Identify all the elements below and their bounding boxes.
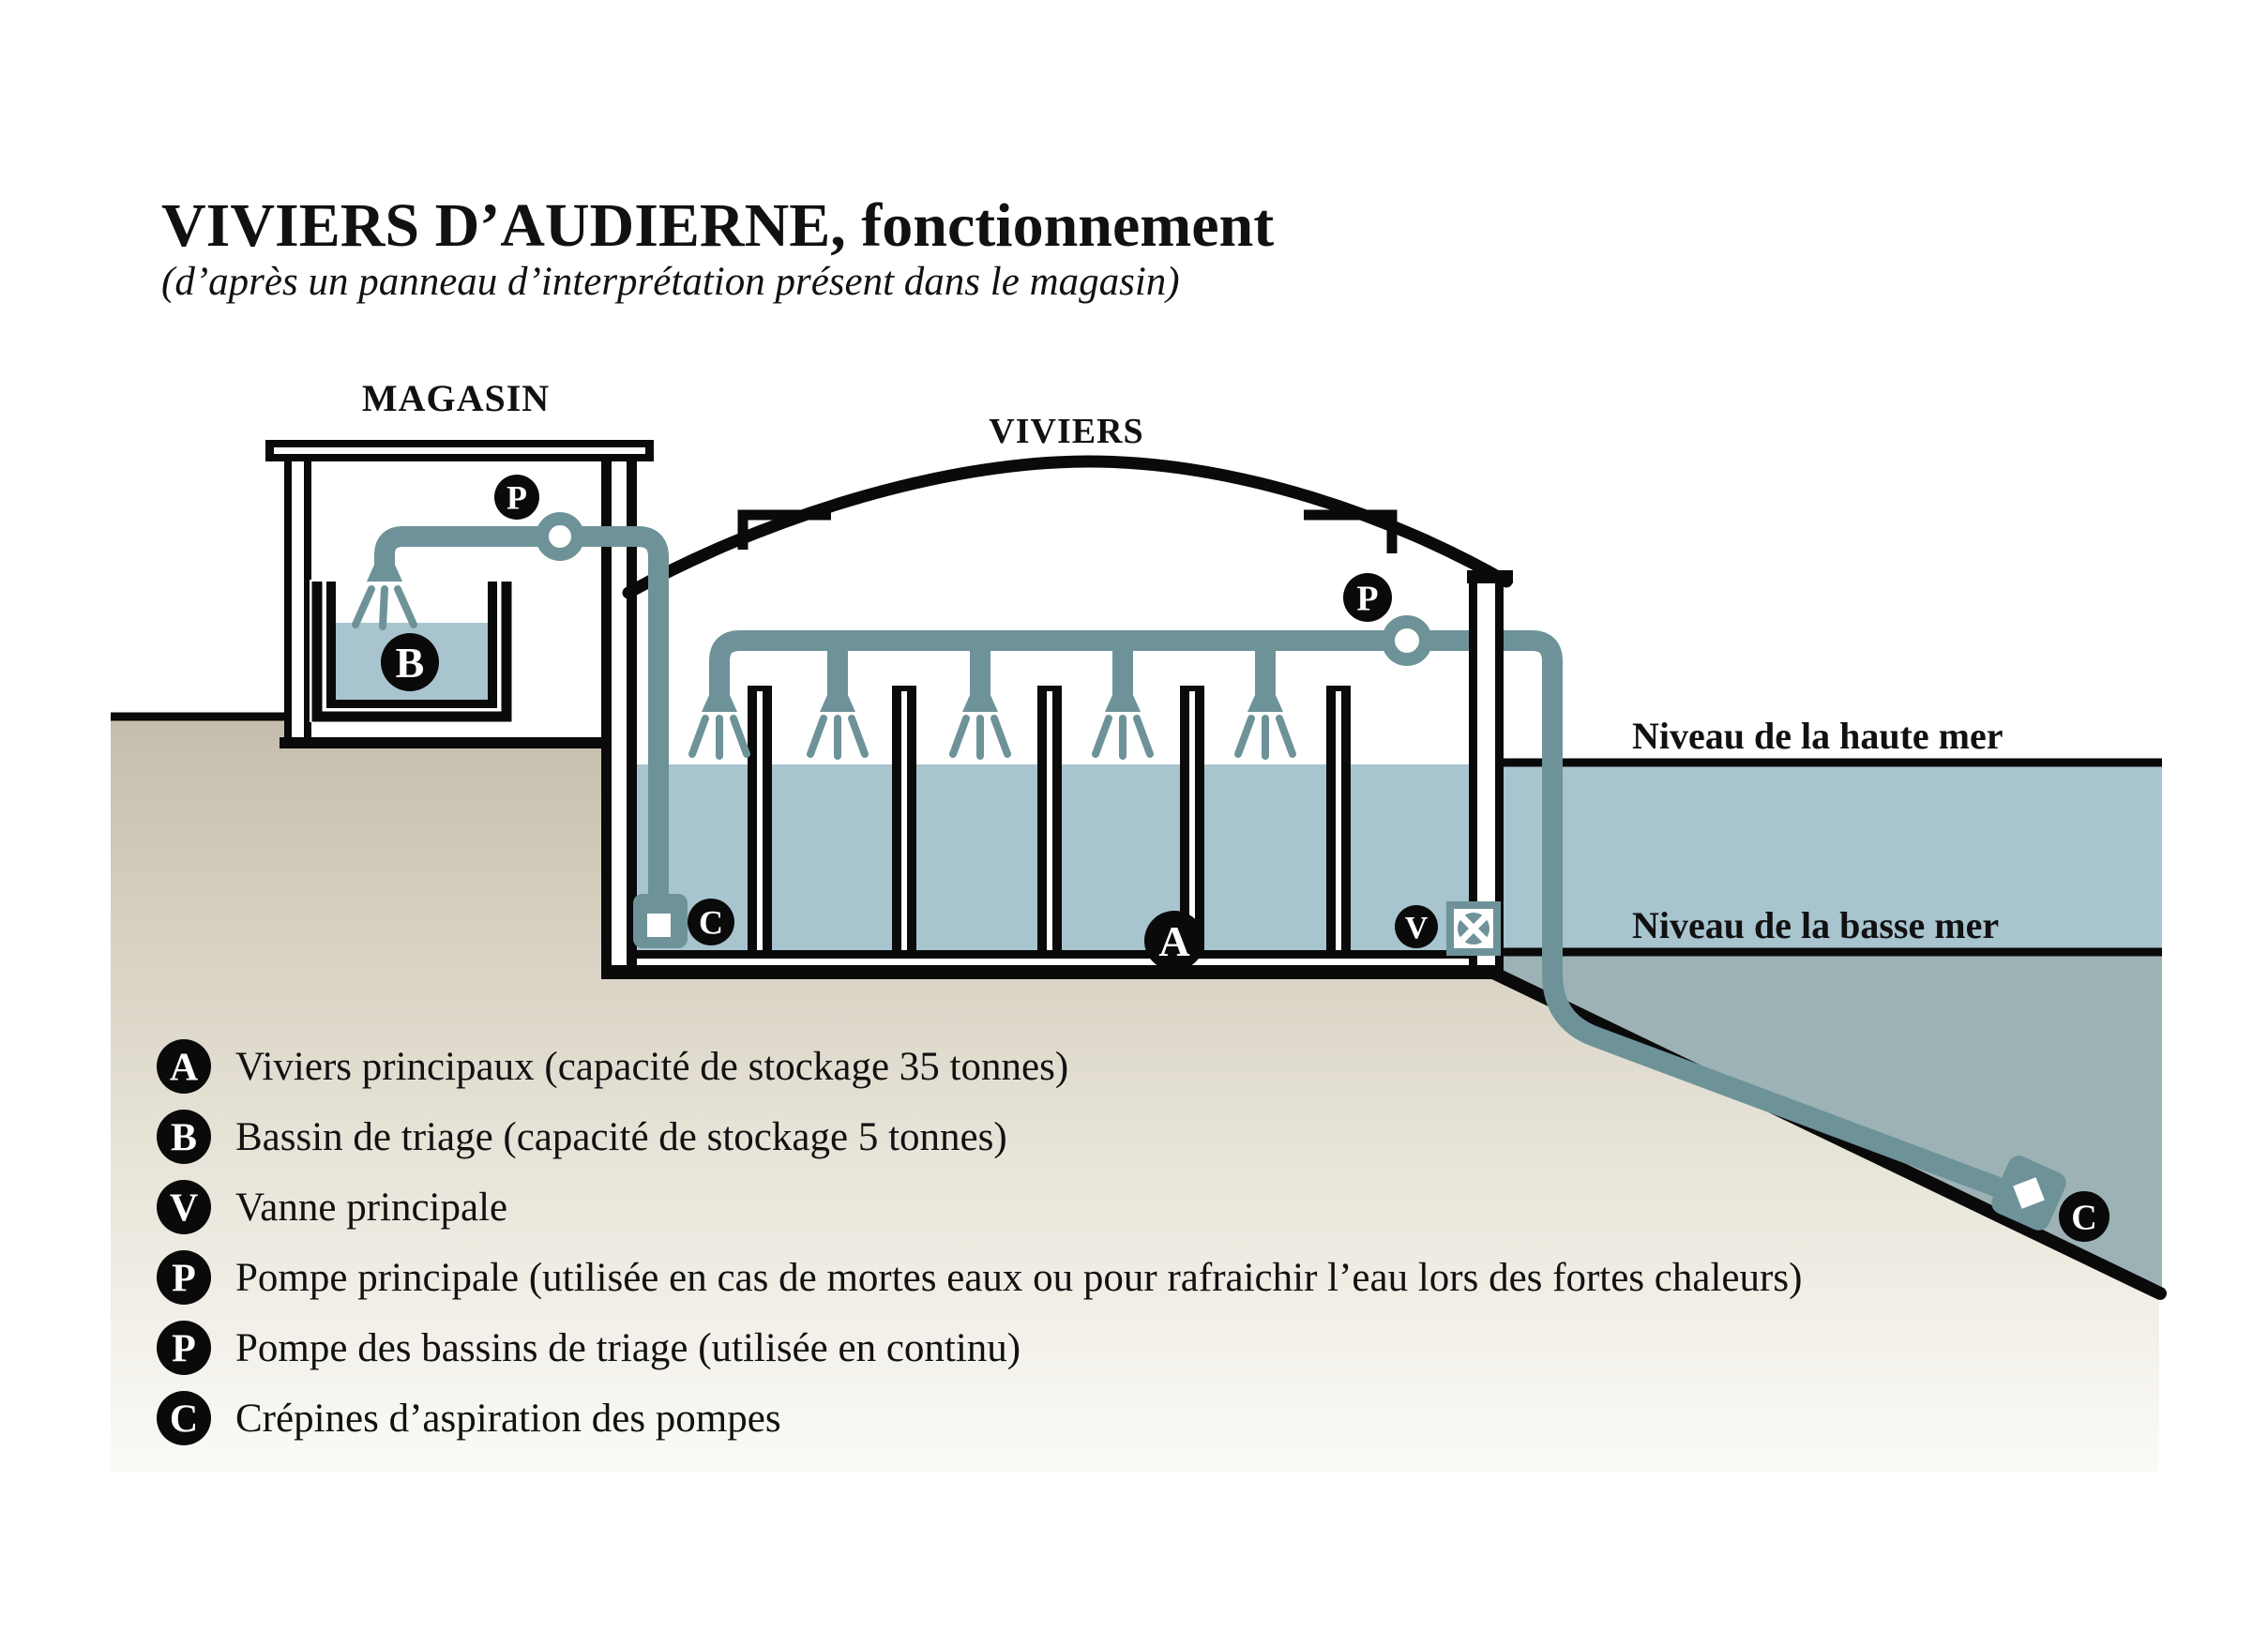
magasin-left-wall-gap — [292, 461, 304, 737]
badge-strainer-right: C — [2059, 1191, 2109, 1242]
viviers-label: VIVIERS — [989, 412, 1143, 451]
legend-item: B Bassin de triage (capacité de stockage… — [157, 1110, 1007, 1164]
tank-floor-gap — [616, 959, 1482, 965]
legend-item: A Viviers principaux (capacité de stocka… — [157, 1039, 1068, 1094]
legend-badge-letter: V — [170, 1187, 198, 1231]
badge-basin: B — [381, 633, 439, 691]
triage-pump-icon — [536, 512, 584, 561]
viviers-arch-roof — [628, 461, 1506, 593]
badge-letter: P — [1356, 579, 1378, 618]
legend-item: C Crépines d’aspiration des pompes — [157, 1391, 781, 1445]
legend-item-text: Pompe principale (utilisée en cas de mor… — [235, 1256, 1802, 1300]
badge-letter: P — [507, 479, 527, 517]
legend-item-text: Viviers principaux (capacité de stockage… — [235, 1045, 1068, 1089]
legend-item-text: Pompe des bassins de triage (utilisée en… — [235, 1326, 1021, 1370]
legend-item-text: Vanne principale — [235, 1186, 507, 1230]
magasin-roof-slit — [274, 447, 645, 454]
badge-letter: C — [2071, 1198, 2096, 1237]
main-pump-icon — [1382, 615, 1432, 666]
badge-main-tanks: A — [1144, 911, 1204, 971]
badge-letter: C — [699, 904, 723, 942]
legend-badge-letter: C — [170, 1398, 198, 1442]
high-tide-label: Niveau de la haute mer — [1632, 715, 2003, 757]
low-tide-label: Niveau de la basse mer — [1632, 904, 1999, 946]
sprinkler-icon — [810, 695, 865, 756]
shaft-cap — [1467, 570, 1513, 583]
tank-inner-floor — [616, 950, 1482, 959]
manifold-branch — [1255, 641, 1276, 699]
page-title: VIVIERS D’AUDIERNE, fonctionnement — [161, 191, 1274, 260]
magasin-label: MAGASIN — [362, 377, 550, 419]
legend-badge-letter: A — [170, 1047, 199, 1090]
diagram-page: P P B A V C C MAGASIN VIVIERS Niveau de … — [0, 0, 2268, 1632]
legend-badge-letter: P — [172, 1258, 196, 1301]
sprinkler-icon — [1096, 695, 1150, 756]
manifold-branch — [827, 641, 848, 699]
sprinkler-icon — [1238, 695, 1293, 756]
sprinkler-icon — [692, 695, 747, 756]
badge-letter: B — [396, 639, 425, 687]
badge-strainer-left: C — [688, 899, 734, 945]
badge-pump-main: P — [1343, 573, 1392, 622]
legend-item: P Pompe des bassins de triage (utilisée … — [157, 1321, 1021, 1375]
sprinkler-icon — [953, 695, 1007, 756]
legend-badge-letter: B — [171, 1117, 197, 1160]
page-subtitle: (d’après un panneau d’interprétation pré… — [161, 260, 1180, 304]
badge-valve: V — [1395, 905, 1438, 948]
magasin-base — [280, 737, 612, 748]
manifold-branch — [970, 641, 990, 699]
tank-outer-base — [601, 965, 1501, 979]
badge-letter: A — [1158, 917, 1189, 965]
viviers-diagram: P P B A V C C MAGASIN VIVIERS Niveau de … — [0, 0, 2268, 1632]
legend-item-text: Bassin de triage (capacité de stockage 5… — [235, 1115, 1007, 1159]
legend-item: P Pompe principale (utilisée en cas de m… — [157, 1250, 1802, 1305]
legend-badge-letter: P — [172, 1328, 196, 1371]
badge-pump-triage: P — [494, 475, 539, 520]
manifold-branch — [1112, 641, 1133, 699]
badge-letter: V — [1405, 911, 1429, 945]
main-valve-icon — [1446, 901, 1501, 956]
strainer-left-icon — [633, 894, 688, 948]
legend-item-text: Crépines d’aspiration des pompes — [235, 1397, 781, 1441]
